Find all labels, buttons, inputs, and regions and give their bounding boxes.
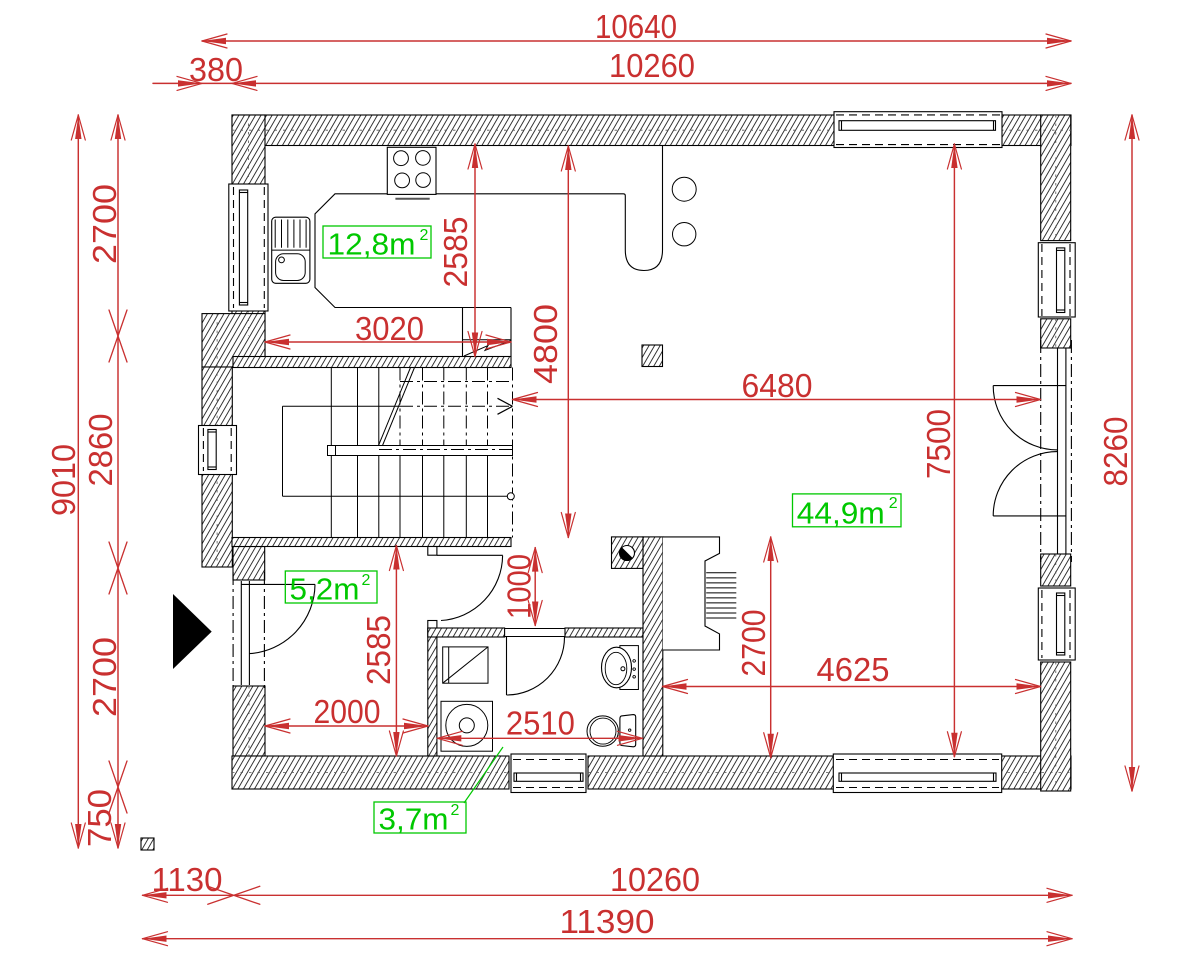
svg-text:380: 380	[189, 51, 243, 88]
svg-text:2000: 2000	[314, 693, 381, 730]
svg-text:3,7m: 3,7m	[379, 802, 449, 837]
svg-text:2700: 2700	[86, 637, 123, 717]
svg-text:2510: 2510	[506, 705, 575, 742]
svg-text:4800: 4800	[527, 304, 564, 384]
svg-text:2: 2	[451, 802, 460, 819]
svg-text:6480: 6480	[742, 367, 813, 404]
svg-text:2700: 2700	[735, 610, 772, 677]
svg-text:2585: 2585	[360, 615, 397, 685]
svg-text:8260: 8260	[1097, 417, 1134, 487]
svg-text:7500: 7500	[920, 409, 957, 479]
svg-text:10640: 10640	[595, 8, 677, 45]
svg-text:2585: 2585	[437, 217, 474, 288]
svg-text:10260: 10260	[610, 861, 700, 898]
svg-text:5,2m: 5,2m	[290, 572, 360, 607]
svg-text:750: 750	[81, 789, 118, 847]
svg-text:2: 2	[420, 227, 429, 244]
svg-text:2: 2	[362, 572, 371, 589]
svg-text:2860: 2860	[82, 414, 119, 487]
svg-text:3020: 3020	[355, 310, 424, 347]
svg-text:1000: 1000	[501, 554, 538, 619]
svg-text:9010: 9010	[45, 444, 82, 516]
svg-text:2700: 2700	[86, 184, 123, 264]
svg-text:11390: 11390	[560, 903, 655, 940]
svg-text:10260: 10260	[609, 47, 695, 84]
svg-text:2: 2	[889, 495, 898, 512]
svg-text:44,9m: 44,9m	[797, 495, 885, 530]
svg-text:1130: 1130	[152, 861, 223, 898]
svg-text:12,8m: 12,8m	[328, 227, 416, 262]
svg-text:4625: 4625	[817, 651, 890, 688]
